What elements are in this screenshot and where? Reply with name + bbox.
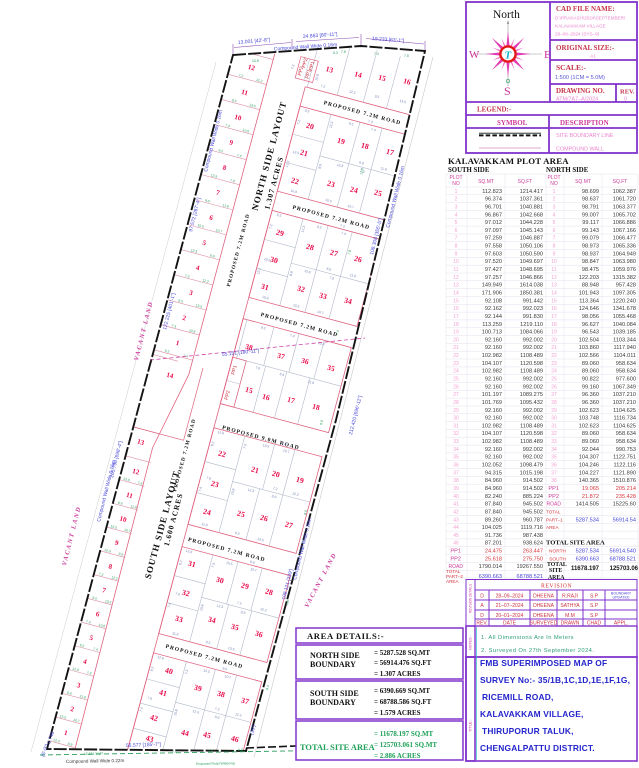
svg-text:19.065: 19.065 [582, 486, 599, 492]
svg-text:96.360: 96.360 [582, 400, 599, 406]
svg-text:PP2: PP2 [548, 494, 559, 500]
svg-text:31: 31 [453, 423, 459, 429]
svg-text:18: 18 [453, 322, 459, 328]
svg-text:1048.695: 1048.695 [520, 267, 543, 273]
svg-text:8.3: 8.3 [333, 51, 338, 55]
svg-text:1850.381: 1850.381 [520, 291, 543, 297]
svg-text:1089.275: 1089.275 [520, 392, 543, 398]
svg-text:92.162: 92.162 [485, 306, 502, 312]
svg-text:103.748: 103.748 [579, 416, 599, 422]
svg-text:6: 6 [455, 228, 458, 234]
svg-text:TOTAL: TOTAL [546, 509, 561, 514]
svg-text:1. All Dimensions Are In: 1. All Dimensions Are In Meters [481, 635, 574, 641]
svg-text:ROAD: ROAD [547, 502, 562, 508]
svg-text:THIRUPORUR TALUK,: THIRUPORUR TALUK, [482, 726, 574, 736]
svg-text:89.260: 89.260 [485, 517, 502, 523]
svg-text:8: 8 [553, 244, 556, 250]
svg-text:958.634: 958.634 [616, 369, 636, 375]
svg-text:1103.344: 1103.344 [613, 337, 636, 343]
svg-text:104.025: 104.025 [482, 525, 502, 531]
svg-text:87.201: 87.201 [485, 541, 502, 547]
svg-text:1046.866: 1046.866 [520, 275, 543, 281]
svg-text:98.475: 98.475 [582, 267, 599, 273]
svg-text:3: 3 [553, 205, 556, 211]
svg-text:97.427: 97.427 [485, 267, 502, 273]
svg-text:99.117: 99.117 [582, 220, 599, 226]
svg-text:PART–1: PART–1 [546, 517, 563, 522]
svg-text:33: 33 [453, 439, 459, 445]
svg-text:122.203: 122.203 [579, 275, 599, 281]
svg-text:2: 2 [553, 197, 556, 203]
svg-text:25: 25 [453, 377, 459, 383]
svg-text:97.097: 97.097 [485, 228, 502, 234]
svg-text:28: 28 [551, 400, 557, 406]
svg-text:990.753: 990.753 [616, 447, 636, 453]
svg-text:960.787: 960.787 [523, 517, 543, 523]
svg-text:NORTH SIDE: NORTH SIDE [546, 167, 589, 174]
svg-text:23: 23 [453, 361, 459, 367]
svg-text:4: 4 [553, 212, 556, 218]
svg-text:26: 26 [453, 384, 459, 390]
svg-text:1116.734: 1116.734 [614, 416, 637, 422]
svg-text:102.052: 102.052 [482, 463, 502, 469]
svg-text:97.259: 97.259 [485, 236, 502, 242]
svg-text:98.847: 98.847 [582, 259, 599, 265]
svg-text:28–09–2024: 28–09–2024 [496, 594, 524, 600]
svg-text:140.365: 140.365 [579, 478, 599, 484]
svg-text:CHENGALPATTU DISTRICT.: CHENGALPATTU DISTRICT. [480, 743, 595, 753]
svg-text:205.214: 205.214 [616, 486, 636, 492]
svg-text:20: 20 [453, 337, 459, 343]
svg-text:1:500 (1CM = 5.0M): 1:500 (1CM = 5.0M) [555, 75, 605, 81]
svg-text:TOTAL SITE AREA: TOTAL SITE AREA [300, 743, 375, 752]
svg-text:= 6390.669 SQ.MT: = 6390.669 SQ.MT [374, 687, 430, 695]
svg-text:1084.066: 1084.066 [520, 330, 543, 336]
svg-text:17: 17 [551, 314, 557, 320]
svg-text:12: 12 [551, 275, 557, 281]
svg-text:98.973: 98.973 [582, 244, 599, 250]
svg-text:ORIGINAL SIZE:-: ORIGINAL SIZE:- [556, 44, 615, 52]
svg-text:7: 7 [455, 236, 458, 242]
svg-text:UPDATED: UPDATED [613, 596, 630, 600]
svg-text:1040.084: 1040.084 [613, 322, 636, 328]
svg-text:1050.590: 1050.590 [520, 251, 543, 257]
svg-text:Compound Wall Wide 0.22m: Compound Wall Wide 0.22m [66, 758, 125, 764]
svg-text:13: 13 [453, 283, 459, 289]
svg-text:1061.720: 1061.720 [613, 197, 636, 203]
svg-text:21: 21 [551, 345, 557, 351]
svg-text:96.867: 96.867 [485, 212, 502, 218]
svg-text:1510.876: 1510.876 [613, 478, 636, 484]
svg-text:34: 34 [551, 447, 557, 453]
svg-text:991.442: 991.442 [523, 298, 543, 304]
svg-text:1055.468: 1055.468 [613, 314, 636, 320]
svg-text:56914.54: 56914.54 [613, 517, 636, 523]
svg-text:1219.110: 1219.110 [520, 322, 543, 328]
svg-text:31: 31 [551, 423, 557, 429]
svg-text:E: E [544, 49, 551, 61]
svg-text:1220.240: 1220.240 [613, 298, 636, 304]
svg-text:15: 15 [551, 298, 557, 304]
svg-text:DESCRIPTION: DESCRIPTION [560, 119, 609, 127]
svg-text:PP1: PP1 [450, 549, 461, 555]
svg-text:PP2: PP2 [450, 556, 461, 562]
svg-text:= 1.579 ACRES: = 1.579 ACRES [374, 709, 421, 717]
svg-text:SATHYA: SATHYA [560, 603, 580, 609]
svg-text:56914.540: 56914.540 [610, 549, 636, 555]
svg-text:87.840: 87.840 [485, 509, 502, 515]
svg-text:102.982: 102.982 [482, 353, 502, 359]
svg-text:11678.197: 11678.197 [571, 566, 600, 572]
svg-text:987.438: 987.438 [523, 533, 543, 539]
svg-text:102.623: 102.623 [579, 423, 599, 429]
svg-text:957.428: 957.428 [616, 283, 636, 289]
svg-text:7.8: 7.8 [404, 54, 409, 58]
svg-text:992.002: 992.002 [523, 455, 543, 461]
svg-text:SQ.MT: SQ.MT [575, 179, 591, 185]
svg-text:AREA: AREA [548, 575, 565, 581]
svg-text:1065.336: 1065.336 [613, 244, 636, 250]
svg-text:1614.038: 1614.038 [520, 283, 543, 289]
svg-text:104.246: 104.246 [579, 463, 599, 469]
svg-text:97.257: 97.257 [485, 275, 502, 281]
svg-text:9: 9 [553, 251, 556, 257]
svg-text:= 2.886 ACRES: = 2.886 ACRES [374, 752, 421, 760]
svg-text:977.600: 977.600 [616, 377, 636, 383]
svg-text:171.906: 171.906 [482, 291, 502, 297]
svg-text:1044.228: 1044.228 [520, 220, 543, 226]
svg-text:101.769: 101.769 [482, 400, 502, 406]
svg-text:20: 20 [551, 337, 557, 343]
svg-text:1039.185: 1039.185 [613, 330, 636, 336]
svg-text:5: 5 [553, 220, 556, 226]
svg-text:NO: NO [550, 181, 558, 187]
svg-text:102.982: 102.982 [482, 423, 502, 429]
svg-text:1095.432: 1095.432 [520, 400, 543, 406]
svg-text:REVISION: REVISION [541, 584, 572, 590]
svg-text:10: 10 [551, 259, 557, 265]
svg-text:BOUNDARY: BOUNDARY [310, 698, 356, 707]
svg-text:16: 16 [551, 306, 557, 312]
svg-text:41: 41 [453, 502, 459, 508]
svg-text:AREA: AREA [546, 525, 559, 530]
svg-text:104.107: 104.107 [482, 431, 502, 437]
svg-text:89.060: 89.060 [582, 369, 599, 375]
svg-text:KALAVAKKAM VILLAGE: KALAVAKKAM VILLAGE [555, 24, 606, 29]
svg-text:SQ.FT: SQ.FT [518, 179, 533, 185]
svg-text:958.634: 958.634 [616, 439, 636, 445]
svg-text:7.8: 7.8 [341, 50, 346, 54]
svg-text:SITE BOUNDARY LINE: SITE BOUNDARY LINE [556, 133, 614, 139]
svg-text:84.960: 84.960 [485, 478, 502, 484]
svg-text:11: 11 [551, 267, 556, 273]
svg-text:5287.534: 5287.534 [576, 549, 599, 555]
svg-text:1121.890: 1121.890 [613, 470, 636, 476]
svg-text:27: 27 [551, 392, 557, 398]
svg-text:914.502: 914.502 [523, 478, 543, 484]
svg-text:149.949: 149.949 [482, 283, 502, 289]
svg-text:1037.210: 1037.210 [613, 392, 636, 398]
svg-text:44: 44 [453, 525, 459, 531]
svg-text:28–08–2024 (SYS–9): 28–08–2024 (SYS–9) [555, 32, 600, 37]
svg-text:97.520: 97.520 [485, 259, 502, 265]
svg-text:101.197: 101.197 [482, 392, 502, 398]
svg-text:112.823: 112.823 [482, 189, 502, 195]
svg-text:10: 10 [453, 259, 459, 265]
svg-text:18: 18 [551, 322, 557, 328]
svg-text:885.224: 885.224 [523, 494, 543, 500]
svg-text:7: 7 [553, 236, 556, 242]
svg-text:103.860: 103.860 [579, 345, 599, 351]
svg-text:= 68788.586 SQ.FT: = 68788.586 SQ.FT [374, 698, 432, 706]
svg-text:94.315: 94.315 [485, 470, 502, 476]
svg-text:RICEMILL ROAD,: RICEMILL ROAD, [482, 692, 554, 702]
svg-text:30: 30 [453, 416, 459, 422]
svg-text:FMB SUPERIMPOSED MAP OF: FMB SUPERIMPOSED MAP OF [480, 658, 607, 668]
svg-text:99.160: 99.160 [582, 384, 599, 390]
svg-text:1064.949: 1064.949 [613, 251, 636, 257]
svg-text:REVISION DETAILS: REVISION DETAILS [469, 584, 473, 613]
svg-text:R.RAJI: R.RAJI [562, 594, 578, 600]
svg-text:D: D [480, 613, 484, 619]
svg-text:22: 22 [551, 353, 557, 359]
svg-text:68788.521: 68788.521 [610, 556, 636, 562]
svg-text:98.937: 98.937 [582, 251, 599, 257]
svg-text:W: W [469, 49, 480, 61]
svg-text:M.M: M.M [565, 613, 575, 619]
svg-text:45: 45 [453, 533, 459, 539]
svg-text:19267.550: 19267.550 [517, 564, 543, 570]
svg-text:25: 25 [551, 377, 557, 383]
svg-text:1063.377: 1063.377 [613, 205, 636, 211]
svg-text:6390.663: 6390.663 [576, 556, 599, 562]
svg-text:1098.479: 1098.479 [520, 463, 543, 469]
svg-text:DHEENA: DHEENA [533, 594, 555, 600]
svg-text:3: 3 [455, 205, 458, 211]
svg-text:1104.625: 1104.625 [613, 408, 636, 414]
svg-text:97.558: 97.558 [485, 244, 502, 250]
svg-text:SOUTH SIDE: SOUTH SIDE [448, 167, 490, 174]
svg-text:82.240: 82.240 [485, 494, 502, 500]
svg-text:= 125703.061 SQ.MT: = 125703.061 SQ.MT [374, 741, 437, 749]
svg-text:97.603: 97.603 [485, 251, 502, 257]
svg-text:97.012: 97.012 [485, 220, 502, 226]
svg-text:30: 30 [551, 416, 557, 422]
svg-text:S: S [504, 84, 511, 98]
svg-text:92.160: 92.160 [485, 447, 502, 453]
svg-text:124.646: 124.646 [579, 306, 599, 312]
svg-text:SOUTH SIDE: SOUTH SIDE [310, 689, 359, 698]
svg-text:NORTH SIDE: NORTH SIDE [310, 651, 360, 660]
svg-text:TITLE:-: TITLE:- [469, 719, 473, 732]
svg-text:1119.716: 1119.716 [521, 525, 544, 531]
svg-text:98.791: 98.791 [582, 205, 599, 211]
svg-text:1049.697: 1049.697 [520, 259, 543, 265]
svg-text:104.107: 104.107 [482, 361, 502, 367]
svg-text:SQ.MT: SQ.MT [478, 179, 494, 185]
svg-text:NORTH: NORTH [549, 549, 567, 555]
svg-text:KALAVAKKAM VILLAGE,: KALAVAKKAM VILLAGE, [480, 709, 584, 719]
svg-text:9: 9 [455, 251, 458, 257]
svg-text:DRAWING NO.: DRAWING NO. [556, 87, 605, 95]
svg-text:S.P: S.P [590, 613, 599, 619]
svg-text:29: 29 [453, 408, 459, 414]
svg-text:7.4: 7.4 [374, 52, 379, 56]
svg-text:S.P: S.P [590, 594, 599, 600]
svg-text:113.259: 113.259 [482, 322, 502, 328]
svg-text:1066.477: 1066.477 [613, 236, 636, 242]
svg-text:125703.06: 125703.06 [610, 566, 639, 572]
svg-text:5: 5 [455, 220, 458, 226]
svg-text:96.543: 96.543 [582, 330, 599, 336]
svg-text:24: 24 [453, 369, 459, 375]
svg-text:1117.940: 1117.940 [614, 345, 637, 351]
svg-text:26: 26 [551, 384, 557, 390]
svg-text:24: 24 [551, 369, 557, 375]
svg-text:42: 42 [453, 509, 459, 515]
svg-text:LEGEND:-: LEGEND:- [477, 106, 512, 114]
svg-text:102.566: 102.566 [579, 353, 599, 359]
svg-text:1108.489: 1108.489 [520, 369, 543, 375]
svg-text:102.982: 102.982 [482, 439, 502, 445]
svg-text:1015.198: 1015.198 [520, 470, 543, 476]
svg-text:AREA: AREA [446, 579, 459, 584]
svg-text:992.002: 992.002 [523, 377, 543, 383]
svg-text:7.4: 7.4 [208, 749, 213, 753]
svg-text:7.4: 7.4 [172, 750, 177, 754]
svg-text:99.143: 99.143 [582, 228, 599, 234]
svg-text:91.736: 91.736 [485, 533, 502, 539]
svg-text:87.840: 87.840 [485, 502, 502, 508]
svg-text:33: 33 [551, 439, 557, 445]
svg-text:20–01–2024: 20–01–2024 [496, 613, 524, 619]
svg-text:0: 0 [624, 97, 627, 103]
svg-text:275.750: 275.750 [523, 556, 543, 562]
svg-text:= 5287.528 SQ.MT: = 5287.528 SQ.MT [374, 649, 430, 657]
svg-text:1120.598: 1120.598 [520, 431, 543, 437]
svg-text:SCALE:-: SCALE:- [556, 63, 587, 72]
svg-text:992.002: 992.002 [523, 384, 543, 390]
svg-text:35: 35 [453, 455, 459, 461]
svg-text:25.618: 25.618 [485, 556, 502, 562]
svg-text:23: 23 [551, 361, 557, 367]
svg-text:6.0: 6.0 [238, 748, 243, 752]
svg-text:29: 29 [551, 408, 557, 414]
svg-text:958.634: 958.634 [616, 361, 636, 367]
svg-text:19: 19 [453, 330, 459, 336]
svg-text:17: 17 [453, 314, 459, 320]
svg-text:6: 6 [553, 228, 556, 234]
svg-text:992.002: 992.002 [523, 337, 543, 343]
svg-text:43: 43 [453, 517, 459, 523]
svg-text:92.160: 92.160 [485, 455, 502, 461]
svg-text:8: 8 [455, 244, 458, 250]
svg-text:A1: A1 [590, 54, 596, 60]
svg-text:1790.014: 1790.014 [479, 564, 502, 570]
svg-text:KALAVAKKAM PLOT AREA: KALAVAKKAM PLOT AREA [448, 156, 569, 166]
svg-text:92.108: 92.108 [485, 298, 502, 304]
svg-text:92.144: 92.144 [485, 314, 502, 320]
svg-text:945.502: 945.502 [523, 509, 543, 515]
svg-text:11: 11 [453, 267, 458, 273]
svg-text:DHEENA: DHEENA [533, 603, 555, 609]
svg-text:1414.505: 1414.505 [576, 502, 599, 508]
svg-text:NOTES:-: NOTES:- [469, 635, 473, 650]
svg-text:S.P: S.P [590, 603, 599, 609]
svg-text:1040.881: 1040.881 [520, 205, 543, 211]
svg-text:914.502: 914.502 [523, 486, 543, 492]
svg-text:92.160: 92.160 [485, 377, 502, 383]
svg-text:1108.489: 1108.489 [520, 353, 543, 359]
svg-text:21–07–2024: 21–07–2024 [496, 603, 524, 609]
svg-text:958.634: 958.634 [616, 431, 636, 437]
svg-text:1097.305: 1097.305 [613, 291, 636, 297]
svg-text:37: 37 [551, 470, 557, 476]
svg-text:56.577 [185'-7"]: 56.577 [185'-7"] [126, 742, 162, 749]
svg-text:4: 4 [455, 212, 458, 218]
svg-text:102.982: 102.982 [482, 369, 502, 375]
svg-text:100.713: 100.713 [482, 330, 502, 336]
svg-text:SYMBOL: SYMBOL [497, 119, 528, 127]
svg-text:1315.382: 1315.382 [613, 275, 636, 281]
svg-text:1067.349: 1067.349 [613, 384, 636, 390]
svg-text:1: 1 [455, 189, 458, 195]
svg-text:19: 19 [551, 330, 557, 336]
svg-text:D: D [480, 594, 484, 600]
svg-text:1063.980: 1063.980 [613, 259, 636, 265]
svg-text:38: 38 [453, 478, 459, 484]
svg-text:37: 37 [453, 470, 459, 476]
svg-text:28: 28 [453, 400, 459, 406]
svg-text:1037.361: 1037.361 [520, 197, 543, 203]
svg-text:1214.417: 1214.417 [520, 189, 543, 195]
svg-text:= 56914.476 SQ.FT: = 56914.476 SQ.FT [374, 659, 432, 667]
svg-text:34: 34 [453, 447, 459, 453]
svg-text:= 11678.197 SQ.MT: = 11678.197 SQ.MT [374, 730, 434, 738]
svg-text:5287.534: 5287.534 [576, 517, 599, 523]
svg-text:CAD FILE NAME:: CAD FILE NAME: [556, 5, 615, 13]
svg-text:SURVEY No:- 35/1B,1C,1D,1E,1F,: SURVEY No:- 35/1B,1C,1D,1E,1F,1G, [480, 675, 630, 685]
svg-text:COMPOUND WALL: COMPOUND WALL [556, 147, 604, 153]
svg-text:13.8: 13.8 [252, 59, 259, 63]
svg-text:98.056: 98.056 [582, 314, 599, 320]
svg-text:1065.702: 1065.702 [613, 212, 636, 218]
svg-text:SQ.FT: SQ.FT [613, 179, 628, 185]
svg-text:1: 1 [553, 189, 556, 195]
svg-text:92.160: 92.160 [485, 408, 502, 414]
svg-text:92.160: 92.160 [485, 345, 502, 351]
svg-text:24.475: 24.475 [485, 549, 502, 555]
svg-text:1050.106: 1050.106 [520, 244, 543, 250]
svg-text:992.002: 992.002 [523, 408, 543, 414]
svg-text:992.023: 992.023 [523, 306, 543, 312]
svg-text:NO: NO [452, 181, 460, 187]
svg-text:North: North [493, 9, 520, 21]
svg-text:113.364: 113.364 [579, 298, 599, 304]
svg-text:36: 36 [453, 463, 459, 469]
svg-text:1122.116: 1122.116 [614, 463, 637, 469]
svg-text:98.699: 98.699 [582, 189, 599, 195]
svg-text:98.637: 98.637 [582, 197, 599, 203]
svg-text:32: 32 [453, 431, 459, 437]
svg-text:1062.387: 1062.387 [613, 189, 636, 195]
svg-text:1059.976: 1059.976 [613, 267, 636, 273]
svg-text:1066.886: 1066.886 [613, 220, 636, 226]
svg-text:2. Surveyed On 27th Septem: 2. Surveyed On 27th September 2024. [481, 648, 594, 654]
svg-text:27: 27 [453, 392, 459, 398]
svg-text:99.079: 99.079 [582, 236, 599, 242]
svg-text:992.002: 992.002 [523, 416, 543, 422]
